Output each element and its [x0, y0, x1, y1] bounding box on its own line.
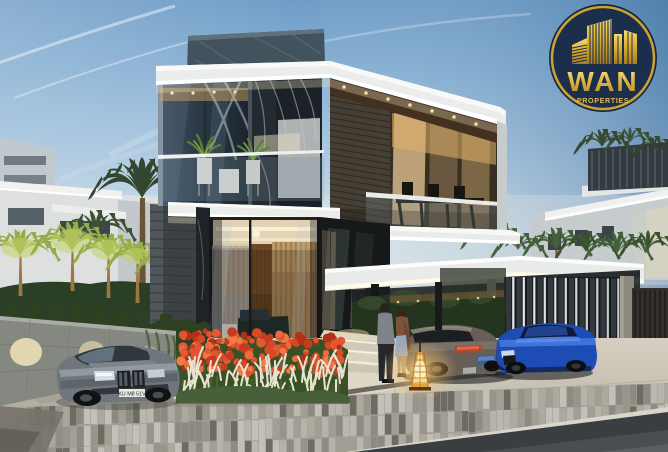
svg-text:WAN: WAN	[567, 66, 638, 97]
svg-text:PROPERTIES: PROPERTIES	[577, 96, 629, 105]
svg-text:KU M8 51V: KU M8 51V	[118, 392, 146, 398]
